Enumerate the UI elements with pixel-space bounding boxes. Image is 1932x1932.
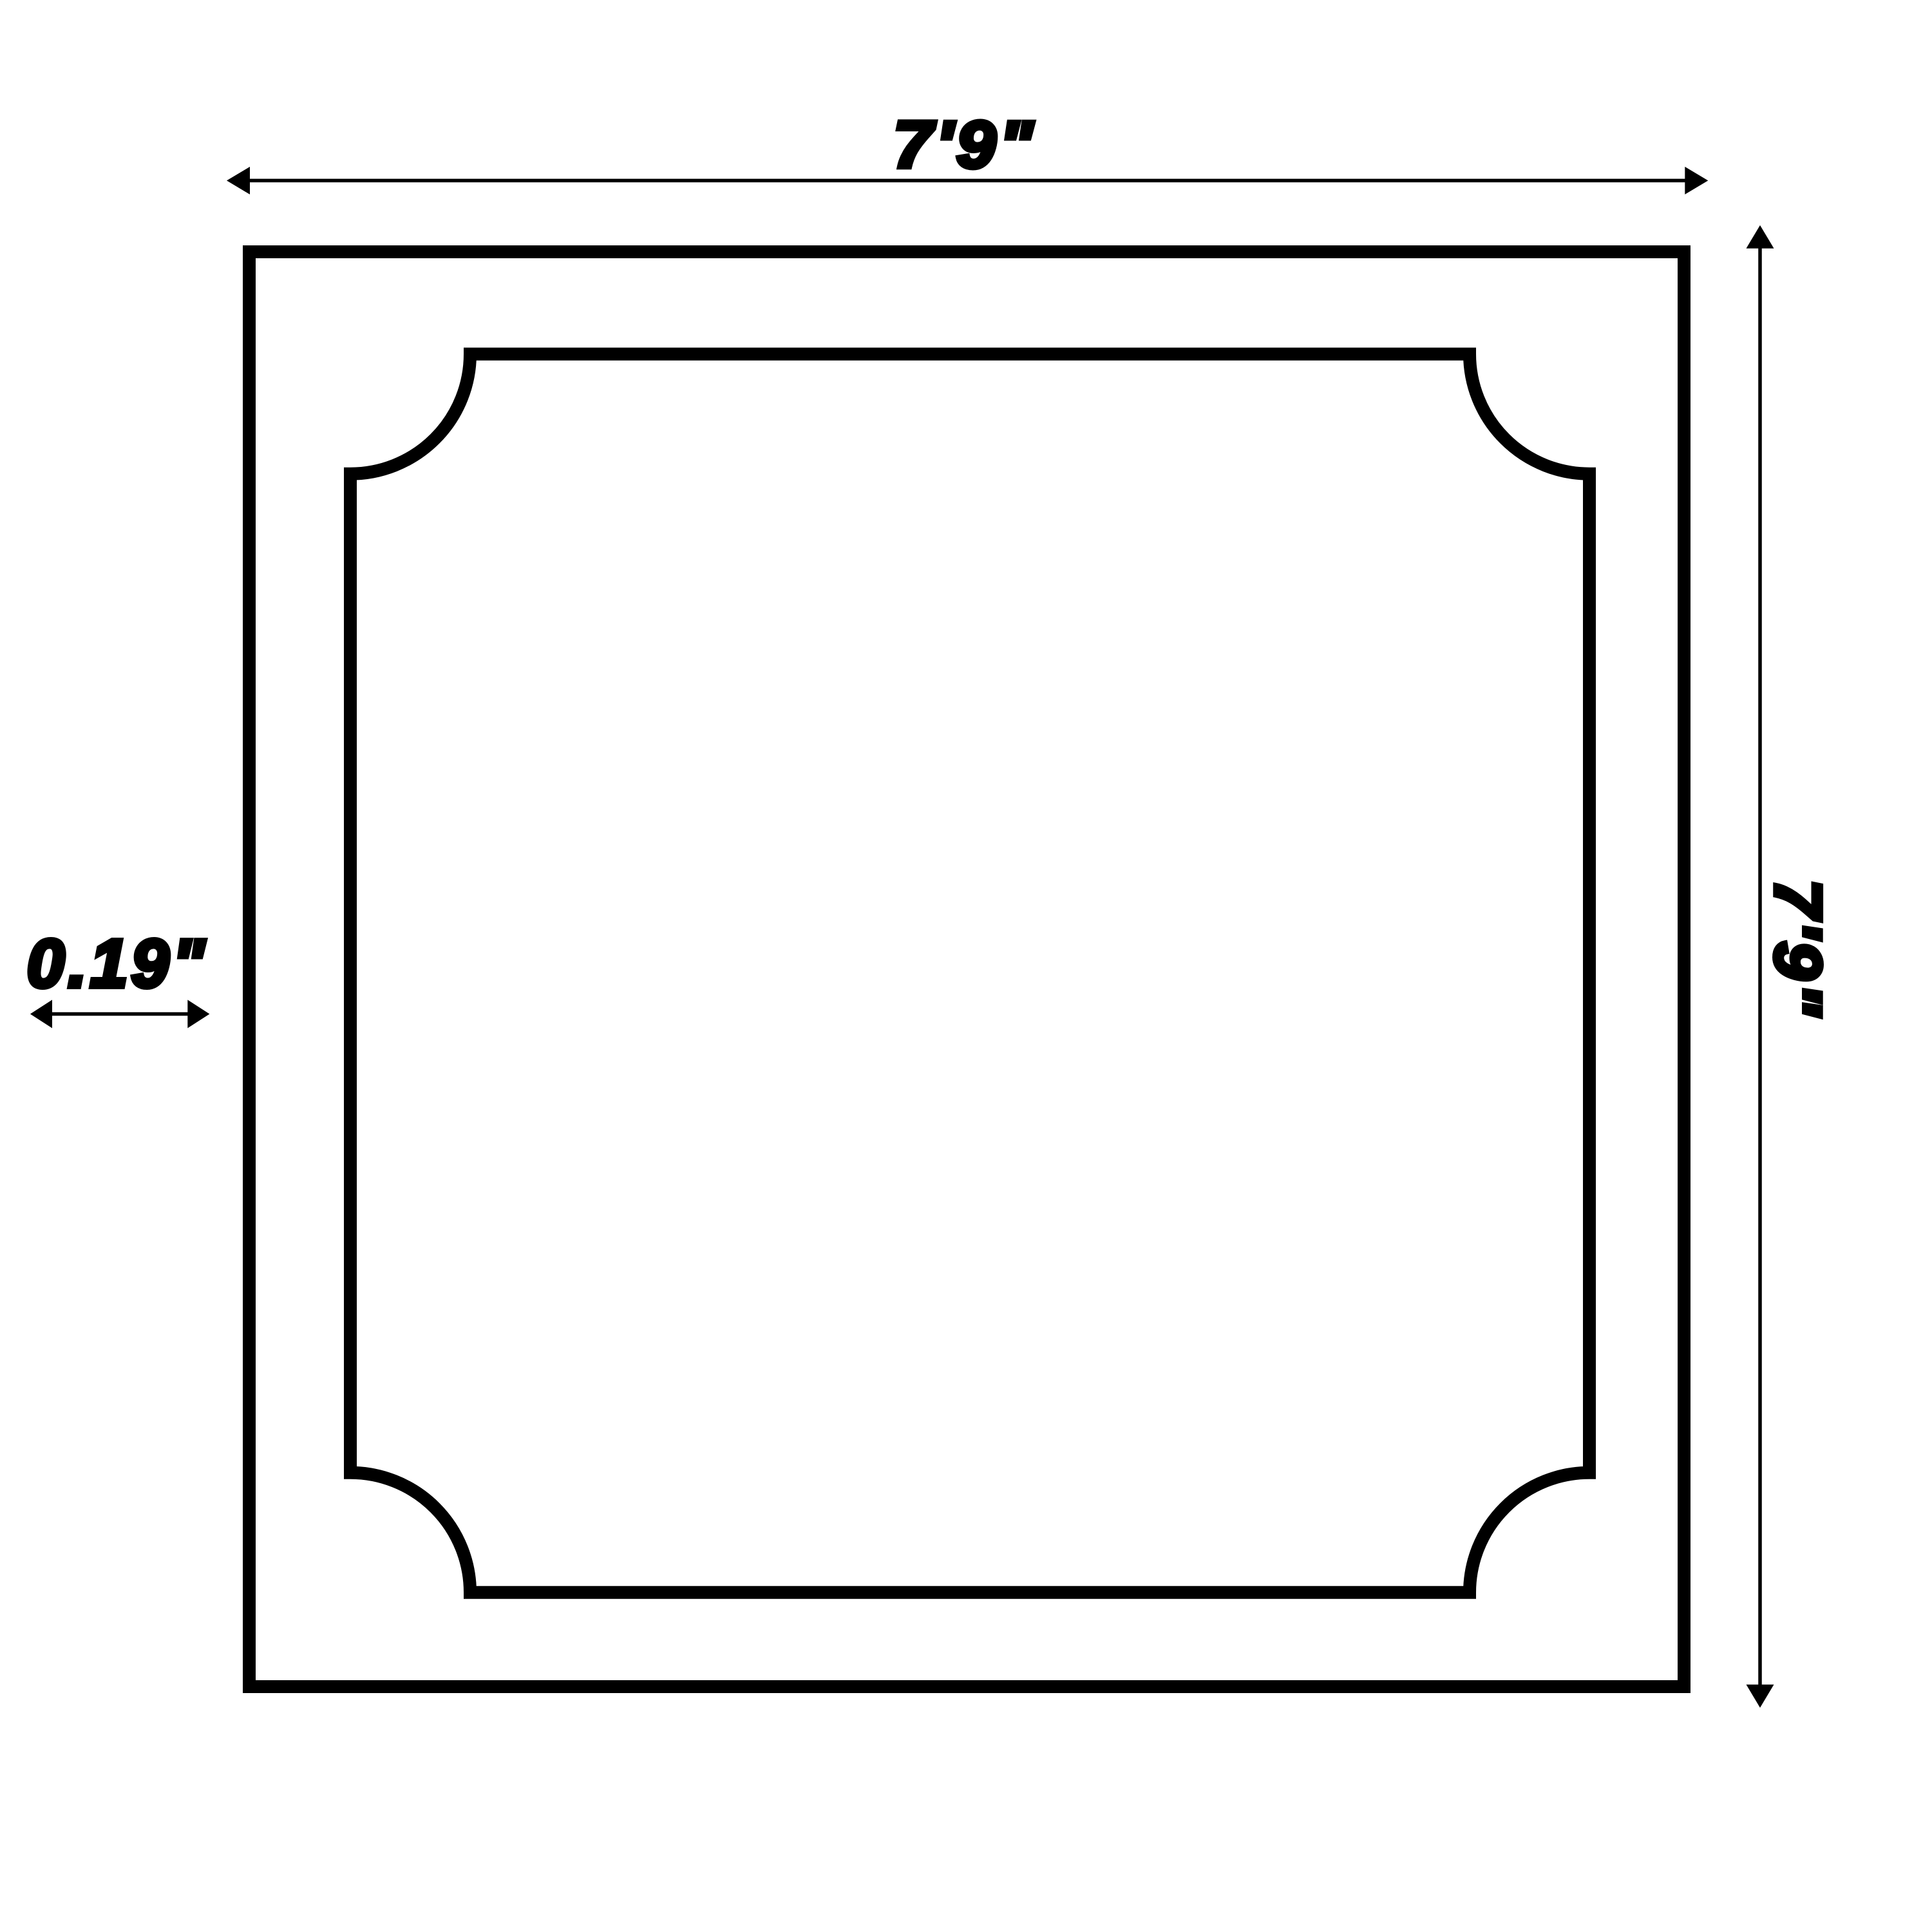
svg-text:7'9": 7'9" <box>1761 879 1834 1019</box>
svg-text:7'9": 7'9" <box>893 108 1036 182</box>
svg-text:0.19": 0.19" <box>27 925 208 1001</box>
